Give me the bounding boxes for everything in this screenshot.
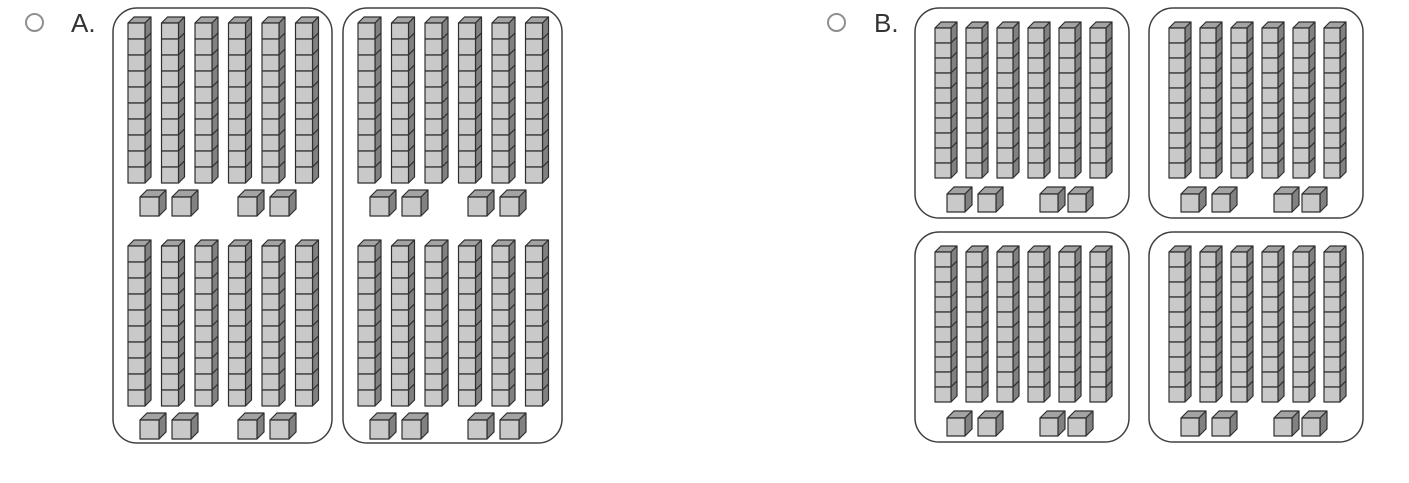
block-group [128,240,319,439]
tens-rod [1262,246,1284,402]
ones-cube [370,190,396,216]
tens-rod [1169,246,1191,402]
tens-rod [1231,246,1253,402]
block-group [128,17,319,216]
ones-cube [238,190,264,216]
ones-cube [172,413,198,439]
tens-rod [229,17,252,183]
tens-rod [492,17,515,183]
tens-rod [459,240,482,406]
tens-rod [1028,246,1050,402]
tens-rod [262,240,285,406]
option-b-container-2 [1149,8,1363,218]
tens-rod [358,17,381,183]
base-ten-blocks-canvas [0,0,1409,483]
tens-rod [1324,22,1346,178]
option-a-block-model [113,8,562,443]
ones-cube [140,413,166,439]
tens-rod [392,240,415,406]
tens-rod [966,246,988,402]
tens-rod [1028,22,1050,178]
tens-rod [1293,246,1315,402]
ones-cube [1274,187,1299,212]
tens-rod [1090,246,1112,402]
tens-rod [358,240,381,406]
tens-rod [1059,246,1081,402]
tens-rod [229,240,252,406]
tens-rod [128,17,151,183]
tens-rod [1324,246,1346,402]
tens-rod [162,240,185,406]
ones-cube [1068,411,1093,436]
ones-cube [1302,187,1327,212]
tens-rod [1200,22,1222,178]
ones-cube [270,413,296,439]
ones-cube [370,413,396,439]
ones-cube [978,411,1003,436]
option-b-container-3 [915,232,1129,442]
ones-cube [978,187,1003,212]
tens-rod [492,240,515,406]
tens-rod [935,22,957,178]
ones-cube [140,190,166,216]
tens-rod [1169,22,1191,178]
block-group [358,17,549,216]
option-b-block-model [915,8,1363,442]
ones-cube [1302,411,1327,436]
tens-rod [195,240,218,406]
answer-options-area: A. B. [0,0,1409,483]
tens-rod [1090,22,1112,178]
tens-rod [195,17,218,183]
tens-rod [425,17,448,183]
block-group [358,240,549,439]
ones-cube [468,190,494,216]
ones-cube [1212,187,1237,212]
tens-rod [1200,246,1222,402]
tens-rod [392,17,415,183]
tens-rod [935,246,957,402]
option-b-container-1 [915,8,1129,218]
tens-rod [128,240,151,406]
tens-rod [425,240,448,406]
ones-cube [468,413,494,439]
option-a-container-2 [343,8,562,443]
tens-rod [526,240,549,406]
block-group [935,22,1112,212]
ones-cube [402,413,428,439]
ones-cube [270,190,296,216]
tens-rod [1262,22,1284,178]
tens-rod [966,22,988,178]
block-group [935,246,1112,436]
ones-cube [238,413,264,439]
ones-cube [172,190,198,216]
tens-rod [296,240,319,406]
tens-rod [1293,22,1315,178]
tens-rod [997,246,1019,402]
block-group [1169,22,1346,212]
ones-cube [947,411,972,436]
tens-rod [1059,22,1081,178]
tens-rod [459,17,482,183]
tens-rod [1231,22,1253,178]
tens-rod [262,17,285,183]
ones-cube [1040,187,1065,212]
ones-cube [1181,187,1206,212]
tens-rod [162,17,185,183]
option-a-container-1 [113,8,332,443]
ones-cube [1068,187,1093,212]
option-b-container-4 [1149,232,1363,442]
ones-cube [1181,411,1206,436]
ones-cube [402,190,428,216]
tens-rod [997,22,1019,178]
ones-cube [1040,411,1065,436]
tens-rod [526,17,549,183]
ones-cube [947,187,972,212]
block-group [1169,246,1346,436]
tens-rod [296,17,319,183]
ones-cube [500,413,526,439]
ones-cube [1274,411,1299,436]
ones-cube [1212,411,1237,436]
ones-cube [500,190,526,216]
